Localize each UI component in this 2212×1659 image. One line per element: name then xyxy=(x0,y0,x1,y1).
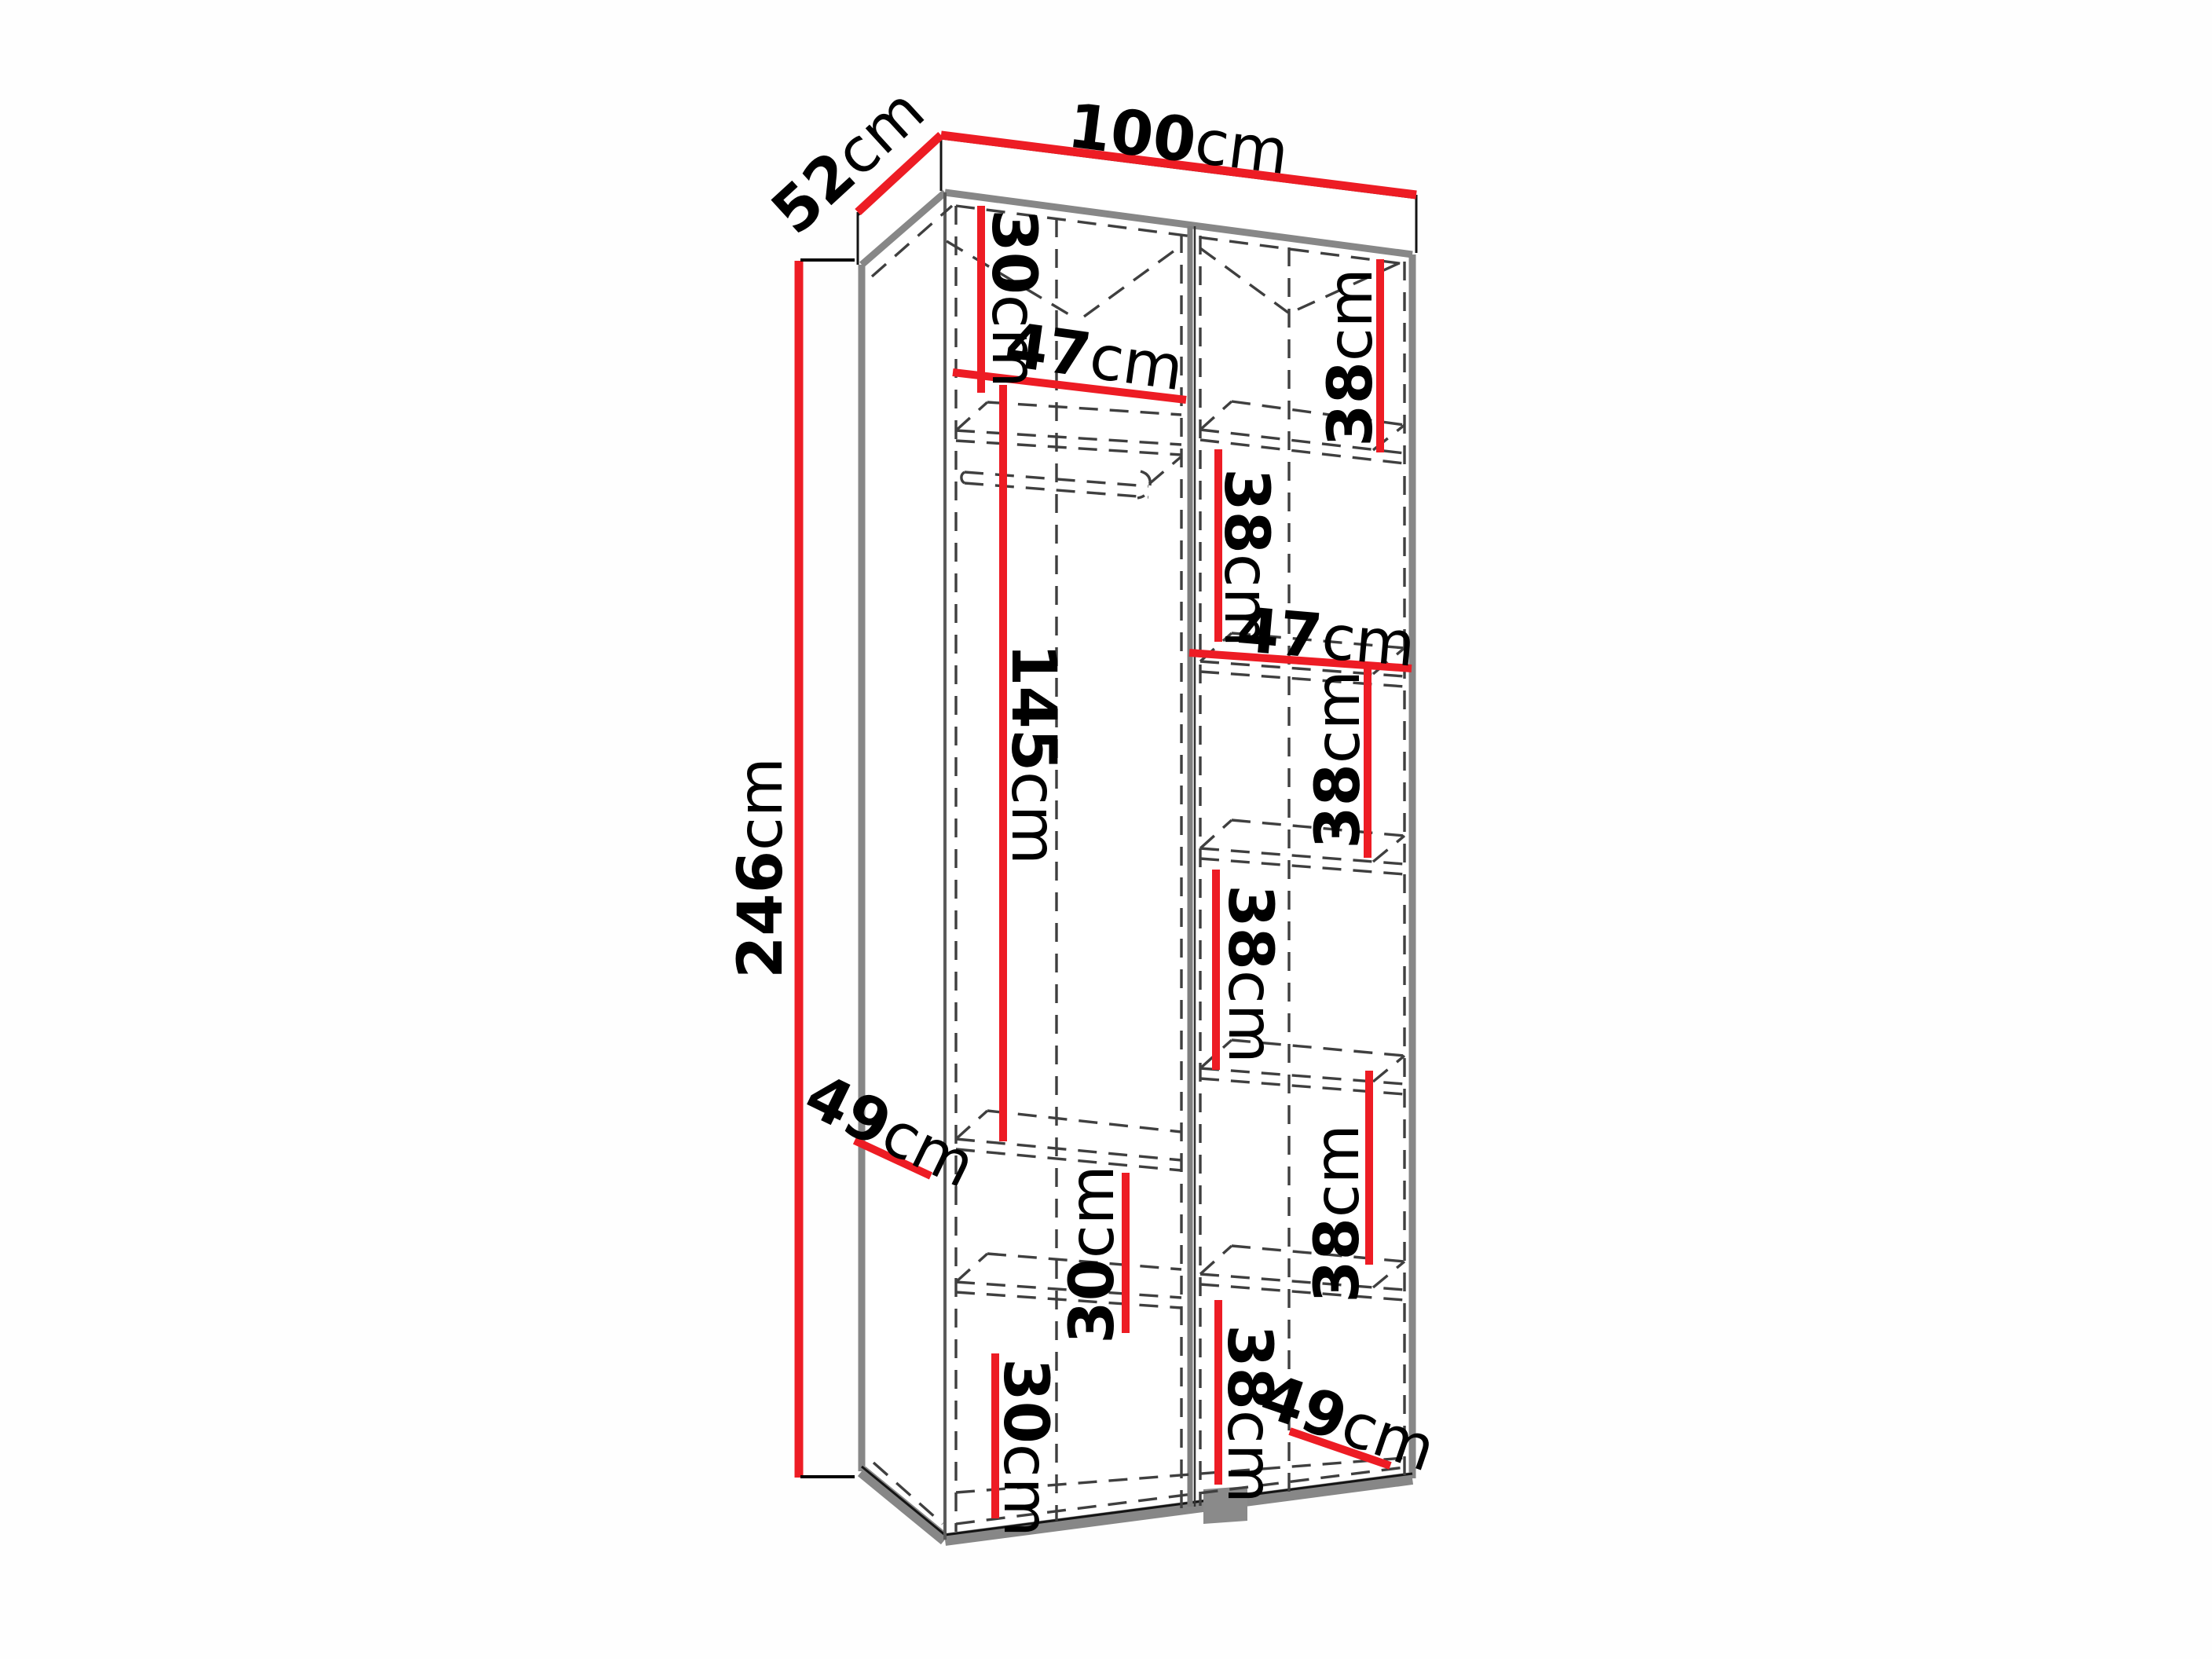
label-right-s3-38: 38cm xyxy=(1303,670,1374,848)
dimension-value: 30 xyxy=(990,1358,1060,1444)
dimension-label: 38cm xyxy=(1303,670,1374,848)
dimension-unit: cm xyxy=(726,757,797,851)
dimension-label: 38cm xyxy=(1316,268,1386,446)
dimension-label: 145cm xyxy=(998,643,1068,865)
center-divider xyxy=(1190,226,1195,1507)
dimension-value: 47 xyxy=(1001,310,1095,392)
dimension-label: 30cm xyxy=(1057,1165,1128,1343)
dimension-unit: cm xyxy=(1316,268,1386,361)
wardrobe-diagram-page: 100cm 52cm 246cm 30cm 47cm 145cm 49cm 30… xyxy=(0,0,2212,1659)
label-hanging-145: 145cm xyxy=(998,643,1068,865)
dimension-value: 38 xyxy=(1302,1218,1373,1303)
dimension-unit: cm xyxy=(990,1444,1060,1537)
dimension-value: 38 xyxy=(1303,764,1374,849)
dimension-unit: cm xyxy=(1214,970,1285,1064)
label-right-s1-38: 38cm xyxy=(1316,268,1386,446)
dimension-unit: cm xyxy=(1319,602,1418,681)
label-bottom-section-30: 30cm xyxy=(990,1358,1060,1536)
dimension-value: 246 xyxy=(726,851,797,979)
dimension-value: 47 xyxy=(1234,595,1325,672)
dimension-value: 38 xyxy=(1210,468,1281,554)
label-right-s4-38: 38cm xyxy=(1214,884,1285,1063)
dimension-value: 145 xyxy=(998,643,1068,771)
wardrobe-diagram: 100cm 52cm 246cm 30cm 47cm 145cm 49cm 30… xyxy=(0,0,2212,1659)
label-mid-section-30: 30cm xyxy=(1057,1165,1128,1343)
dimension-value: 30 xyxy=(978,209,1049,295)
dimension-label: 38cm xyxy=(1302,1124,1373,1302)
dimension-value: 38 xyxy=(1214,884,1285,970)
dimension-label: 38cm xyxy=(1214,884,1285,1063)
dimension-unit: cm xyxy=(1086,322,1188,405)
dimension-unit: cm xyxy=(1057,1165,1128,1258)
dimension-unit: cm xyxy=(998,771,1068,865)
dimension-unit: cm xyxy=(1303,670,1374,764)
label-right-s5-38: 38cm xyxy=(1302,1124,1373,1302)
dimension-label: 246cm xyxy=(726,757,797,979)
dimension-unit: cm xyxy=(1191,107,1292,189)
dimension-unit: cm xyxy=(1302,1124,1373,1218)
dimension-label: 30cm xyxy=(990,1358,1060,1536)
left-side-panel xyxy=(862,192,945,1540)
dimension-value: 30 xyxy=(1057,1258,1128,1344)
dimension-value: 38 xyxy=(1316,361,1386,447)
label-height-246: 246cm xyxy=(726,757,797,979)
